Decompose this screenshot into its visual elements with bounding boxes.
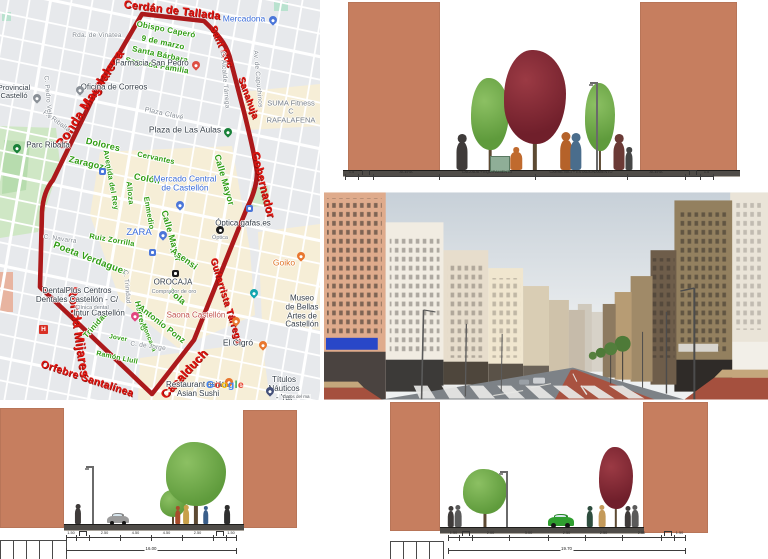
dimension-label: 2.50 [600, 532, 607, 536]
dimension-label: CALZADA + EQUIPAMIENTO [462, 171, 512, 175]
total-dimension-label: 16.00 [145, 547, 158, 551]
lamp-head [589, 84, 593, 86]
person-body [203, 510, 209, 524]
dimension-tick [622, 535, 623, 541]
tree-canopy [599, 447, 633, 509]
dimension-tick [358, 174, 359, 180]
dimension-label: 1.5 [349, 171, 354, 175]
dimension-label: 3.00 [525, 532, 532, 536]
building-facade-block [0, 408, 64, 528]
person-silhouette [75, 504, 82, 524]
person-body [175, 510, 181, 524]
building-facade-block [640, 2, 737, 172]
person-body [183, 509, 189, 524]
dimension-tick [66, 548, 67, 554]
dimension-tick [76, 535, 77, 541]
person-silhouette [570, 133, 583, 170]
dimension-label: 1.50 [227, 532, 234, 536]
dimension-label: 1.50 [450, 532, 457, 536]
lamp-head [499, 473, 503, 475]
person-silhouette [598, 505, 605, 527]
dimension-tick [548, 535, 549, 541]
person-body [587, 511, 593, 527]
person-body [448, 511, 454, 527]
lamp-pole [596, 82, 598, 170]
dimension-label: 2.00 [638, 532, 645, 536]
building-facade-block [243, 410, 297, 528]
dimension-tick [236, 548, 237, 554]
dimension-tick [448, 548, 449, 554]
dimension-tick [345, 174, 346, 180]
person-body [632, 510, 639, 527]
total-dimension-label: 19.70 [560, 547, 573, 551]
section-diagrams-layer: 1.5ACERACALZADA + EQUIPAMIENTOCARRIL BIC… [0, 0, 768, 559]
person-body [570, 141, 581, 170]
bench-symbol [362, 170, 370, 175]
person-silhouette [613, 134, 625, 170]
person-body [224, 509, 230, 524]
ground-line [440, 527, 644, 534]
dimension-tick [439, 174, 440, 180]
dimension-tick [89, 535, 90, 541]
dimension-tick [151, 535, 152, 541]
person-body [599, 510, 606, 527]
dimension-label: 2.00 [487, 532, 494, 536]
dimension-tick [182, 535, 183, 541]
dimension-label: CARRIL BICI + ESTACIONAMIENTO [550, 171, 613, 175]
tree-canopy [166, 442, 226, 506]
dimension-label: ACERA [649, 171, 662, 175]
dimension-tick [448, 535, 449, 541]
lamp-pole [506, 471, 508, 527]
bench-symbol [664, 531, 672, 536]
dimension-label: ACERA [399, 171, 412, 175]
lamp-head [85, 468, 89, 470]
person-body [75, 508, 81, 524]
person-silhouette [203, 506, 209, 524]
dimension-tick [66, 535, 67, 541]
dimension-tick [509, 535, 510, 541]
person-body [625, 152, 632, 170]
dimension-tick [226, 535, 227, 541]
dimension-tick [674, 535, 675, 541]
dimension-label: 1.50 [676, 532, 683, 536]
dimension-tick [120, 535, 121, 541]
street-lamp [596, 82, 606, 170]
table-cell-blank [429, 541, 444, 559]
collage-canvas: Cerdán de TalladaSant RocRonda Magdalena… [0, 0, 768, 559]
building-facade-block [390, 402, 440, 531]
dimension-tick [700, 174, 701, 180]
dimension-label: 1.5 [704, 171, 709, 175]
person-body [625, 511, 631, 527]
dimension-tick [535, 174, 536, 180]
dimension-tick [373, 174, 374, 180]
person-body [456, 142, 467, 170]
dimension-tick [236, 535, 237, 541]
table-cell-blank [52, 540, 67, 559]
person-body [455, 510, 462, 527]
dimension-label: 2.50 [101, 532, 108, 536]
street-lamp [92, 466, 102, 524]
person-silhouette [510, 147, 522, 170]
green-tree [463, 469, 507, 527]
dimension-label: 1.50 [67, 532, 74, 536]
tree-canopy [504, 50, 566, 144]
bench-symbol [689, 170, 697, 175]
dimension-tick [713, 174, 714, 180]
car-wheel [110, 521, 114, 525]
tree-canopy [463, 469, 507, 514]
dimension-label: 4.50 [163, 532, 170, 536]
person-silhouette [175, 506, 181, 524]
person-silhouette [183, 505, 189, 524]
dimension-tick [213, 535, 214, 541]
bench-symbol [79, 531, 87, 536]
dimension-label: 4.50 [132, 532, 139, 536]
dimension-tick [472, 535, 473, 541]
bench-symbol [216, 531, 224, 536]
dimension-label: 2.50 [194, 532, 201, 536]
person-silhouette [586, 506, 593, 527]
dimension-tick [627, 174, 628, 180]
building-facade-block [348, 2, 440, 172]
lamp-pole [92, 466, 94, 524]
person-silhouette [631, 505, 638, 527]
person-silhouette [456, 134, 468, 170]
bench-symbol [462, 531, 470, 536]
building-facade-block [643, 402, 708, 533]
dimension-tick [685, 535, 686, 541]
dimension-line [345, 176, 713, 177]
person-silhouette [224, 505, 230, 524]
ground-line [64, 524, 244, 531]
dimension-tick [685, 548, 686, 554]
car-wheel [122, 521, 126, 525]
person-body [613, 142, 624, 170]
dimension-tick [661, 535, 662, 541]
dimension-tick [459, 535, 460, 541]
person-silhouette [454, 505, 461, 527]
dimension-line [448, 537, 685, 538]
dimension-tick [585, 535, 586, 541]
person-silhouette [625, 147, 633, 170]
dimension-label: 2.50 [563, 532, 570, 536]
dimension-tick [685, 174, 686, 180]
person-body [510, 152, 522, 170]
street-lamp [506, 471, 516, 527]
car-side-view [107, 513, 129, 524]
car-side-view [548, 514, 574, 527]
